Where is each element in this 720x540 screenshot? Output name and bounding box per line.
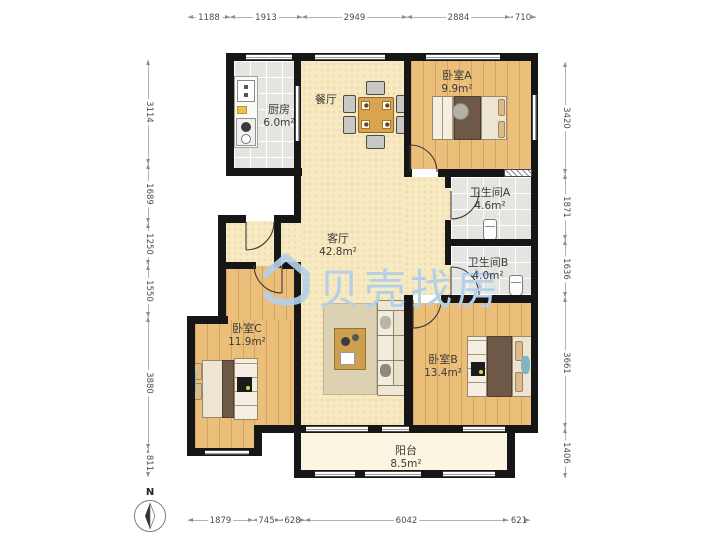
dimension-top-1: 1188: [188, 17, 230, 18]
room-label-bathroom-a: 卫生间A 4.6m²: [455, 186, 525, 213]
dimension-bottom-1: 1879: [188, 520, 253, 521]
dimension-bottom-3: 628: [280, 520, 305, 521]
floor-plan: 贝壳找房 厨房 6.0m² 餐厅 卧室A 9.9m² 卫生间A 4.6m² 卫生…: [0, 0, 720, 540]
dimension-bottom-2: 745: [253, 520, 280, 521]
room-label-bedroom-b: 卧室B 13.4m²: [413, 353, 473, 380]
dimension-right-4: 3661: [565, 297, 566, 428]
room-label-bedroom-c: 卧室C 11.9m²: [217, 322, 277, 349]
dimension-top-3: 2949: [302, 17, 407, 18]
dimension-top-4: 2884: [407, 17, 510, 18]
dimension-left-1: 3114: [148, 60, 149, 164]
room-label-living: 客厅 42.8m²: [308, 232, 368, 259]
room-label-dining: 餐厅: [301, 93, 351, 107]
dimension-bottom-4: 6042: [305, 520, 508, 521]
room-label-bathroom-b: 卫生间B 4.0m²: [453, 256, 523, 283]
dimension-top-2: 1913: [230, 17, 302, 18]
dimension-right-3: 1636: [565, 240, 566, 297]
dimension-left-6: 811: [148, 449, 149, 477]
dimension-right-5: 1406: [565, 428, 566, 478]
dimension-bottom-5: 621: [508, 520, 530, 521]
dimension-left-4: 1550: [148, 265, 149, 317]
room-label-kitchen: 厨房 6.0m²: [249, 103, 309, 130]
room-label-balcony: 阳台 8.5m²: [376, 444, 436, 471]
dimension-left-2: 1689: [148, 164, 149, 223]
room-label-bedroom-a: 卧室A 9.9m²: [427, 69, 487, 96]
dimension-top-5: 710: [510, 17, 536, 18]
dimension-left-5: 3880: [148, 317, 149, 449]
dimension-left-3: 1250: [148, 223, 149, 265]
beike-logo-watermark: [258, 250, 314, 308]
dimension-right-2: 1871: [565, 174, 566, 240]
dimension-right-1: 3420: [565, 62, 566, 174]
